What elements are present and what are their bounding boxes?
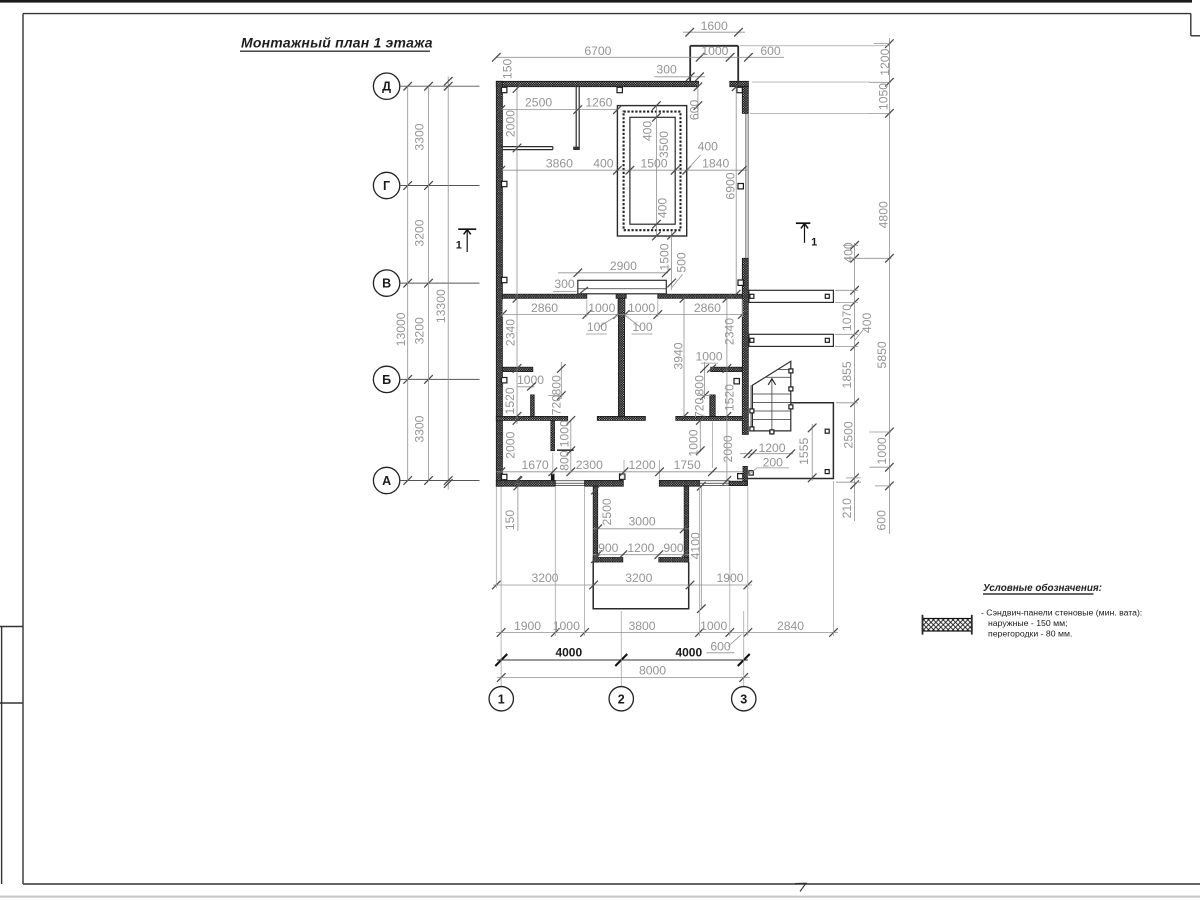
svg-text:1070: 1070 bbox=[840, 304, 854, 331]
svg-text:13300: 13300 bbox=[434, 289, 448, 323]
svg-text:1: 1 bbox=[498, 692, 505, 706]
svg-text:3300: 3300 bbox=[413, 123, 427, 150]
svg-text:100: 100 bbox=[632, 320, 653, 334]
svg-text:1000: 1000 bbox=[628, 301, 655, 315]
svg-text:2: 2 bbox=[618, 692, 625, 706]
svg-text:3200: 3200 bbox=[413, 317, 427, 344]
svg-text:1000: 1000 bbox=[553, 619, 580, 633]
svg-text:Д: Д bbox=[382, 80, 391, 94]
svg-text:200: 200 bbox=[763, 455, 784, 469]
svg-text:4100: 4100 bbox=[689, 532, 703, 559]
svg-text:400: 400 bbox=[640, 121, 654, 142]
svg-text:300: 300 bbox=[656, 62, 677, 76]
svg-text:600: 600 bbox=[710, 640, 731, 654]
svg-text:1500: 1500 bbox=[657, 243, 671, 270]
svg-text:150: 150 bbox=[503, 510, 517, 531]
svg-text:3: 3 bbox=[740, 692, 747, 706]
svg-text:3940: 3940 bbox=[671, 342, 685, 369]
svg-text:1600: 1600 bbox=[701, 19, 728, 33]
svg-text:1520: 1520 bbox=[723, 384, 737, 411]
svg-text:3800: 3800 bbox=[628, 619, 655, 633]
svg-text:900: 900 bbox=[598, 541, 619, 555]
svg-text:2340: 2340 bbox=[504, 319, 518, 346]
svg-text:1050: 1050 bbox=[876, 83, 890, 110]
svg-text:1200: 1200 bbox=[758, 441, 785, 455]
svg-text:- Сэндвич-панели стеновые (мин: - Сэндвич-панели стеновые (мин. вата): bbox=[981, 608, 1142, 618]
svg-text:3300: 3300 bbox=[413, 415, 427, 442]
svg-text:600: 600 bbox=[874, 510, 888, 531]
svg-text:3500: 3500 bbox=[657, 131, 671, 158]
svg-text:3200: 3200 bbox=[413, 219, 427, 246]
svg-text:2500: 2500 bbox=[841, 421, 855, 448]
svg-text:400: 400 bbox=[593, 157, 614, 171]
svg-text:Б: Б bbox=[382, 373, 391, 387]
svg-text:3200: 3200 bbox=[625, 571, 652, 585]
svg-text:8000: 8000 bbox=[639, 663, 666, 677]
svg-text:720: 720 bbox=[549, 395, 563, 416]
svg-text:4000: 4000 bbox=[555, 645, 582, 659]
svg-text:1000: 1000 bbox=[517, 373, 544, 387]
svg-text:3860: 3860 bbox=[546, 157, 573, 171]
svg-text:1670: 1670 bbox=[522, 458, 549, 472]
svg-text:2300: 2300 bbox=[576, 458, 603, 472]
svg-text:1: 1 bbox=[456, 240, 462, 252]
svg-text:600: 600 bbox=[687, 100, 701, 121]
svg-text:1500: 1500 bbox=[640, 157, 667, 171]
svg-text:Условные обозначения:: Условные обозначения: bbox=[983, 583, 1102, 594]
svg-text:3200: 3200 bbox=[531, 571, 558, 585]
svg-text:900: 900 bbox=[663, 541, 684, 555]
svg-text:1900: 1900 bbox=[514, 619, 541, 633]
svg-text:1000: 1000 bbox=[588, 301, 615, 315]
svg-text:1000: 1000 bbox=[701, 44, 728, 58]
svg-text:1000: 1000 bbox=[695, 349, 722, 363]
svg-text:наружные - 150 мм;: наружные - 150 мм; bbox=[988, 618, 1067, 628]
svg-text:2860: 2860 bbox=[694, 301, 721, 315]
svg-text:1200: 1200 bbox=[627, 541, 654, 555]
svg-text:1555: 1555 bbox=[797, 438, 811, 465]
svg-text:А: А bbox=[382, 474, 391, 488]
svg-text:2500: 2500 bbox=[600, 498, 614, 525]
svg-text:1750: 1750 bbox=[674, 458, 701, 472]
svg-text:Монтажный план 1 этажа: Монтажный план 1 этажа bbox=[241, 35, 433, 51]
svg-text:400: 400 bbox=[698, 140, 719, 154]
svg-text:500: 500 bbox=[675, 252, 689, 273]
svg-text:1260: 1260 bbox=[585, 95, 612, 109]
svg-text:800: 800 bbox=[558, 450, 572, 471]
svg-text:1: 1 bbox=[811, 237, 817, 249]
svg-text:2840: 2840 bbox=[777, 619, 804, 633]
svg-text:2860: 2860 bbox=[531, 301, 558, 315]
svg-text:400: 400 bbox=[656, 198, 670, 219]
svg-text:2000: 2000 bbox=[503, 110, 517, 137]
svg-text:1840: 1840 bbox=[702, 157, 729, 171]
svg-text:3000: 3000 bbox=[629, 515, 656, 529]
svg-text:300: 300 bbox=[554, 277, 575, 291]
svg-text:2000: 2000 bbox=[504, 431, 518, 458]
svg-text:100: 100 bbox=[587, 320, 608, 334]
svg-text:400: 400 bbox=[860, 313, 874, 334]
svg-text:1200: 1200 bbox=[878, 48, 892, 75]
svg-text:1000: 1000 bbox=[700, 619, 727, 633]
svg-text:перегородки - 80 мм.: перегородки - 80 мм. bbox=[988, 629, 1072, 639]
svg-text:6900: 6900 bbox=[723, 172, 737, 199]
svg-text:1000: 1000 bbox=[557, 420, 571, 447]
svg-text:2000: 2000 bbox=[721, 435, 735, 462]
svg-text:720: 720 bbox=[692, 397, 706, 418]
svg-text:13000: 13000 bbox=[394, 312, 408, 346]
svg-text:800: 800 bbox=[549, 375, 563, 396]
svg-text:400: 400 bbox=[841, 242, 855, 263]
svg-text:1200: 1200 bbox=[629, 458, 656, 472]
svg-text:6700: 6700 bbox=[584, 44, 611, 58]
svg-text:1000: 1000 bbox=[875, 437, 889, 464]
svg-text:210: 210 bbox=[840, 498, 854, 519]
svg-text:В: В bbox=[382, 277, 391, 291]
svg-text:5850: 5850 bbox=[875, 341, 889, 368]
svg-text:150: 150 bbox=[501, 59, 515, 80]
svg-text:1000: 1000 bbox=[687, 429, 701, 456]
svg-text:4800: 4800 bbox=[876, 201, 890, 228]
svg-text:1520: 1520 bbox=[503, 387, 517, 414]
svg-text:Г: Г bbox=[383, 179, 390, 193]
svg-text:2500: 2500 bbox=[525, 95, 552, 109]
svg-text:800: 800 bbox=[692, 375, 706, 396]
svg-text:1855: 1855 bbox=[840, 361, 854, 388]
svg-text:2900: 2900 bbox=[610, 259, 637, 273]
svg-text:2340: 2340 bbox=[723, 318, 737, 345]
svg-text:4000: 4000 bbox=[675, 645, 702, 659]
